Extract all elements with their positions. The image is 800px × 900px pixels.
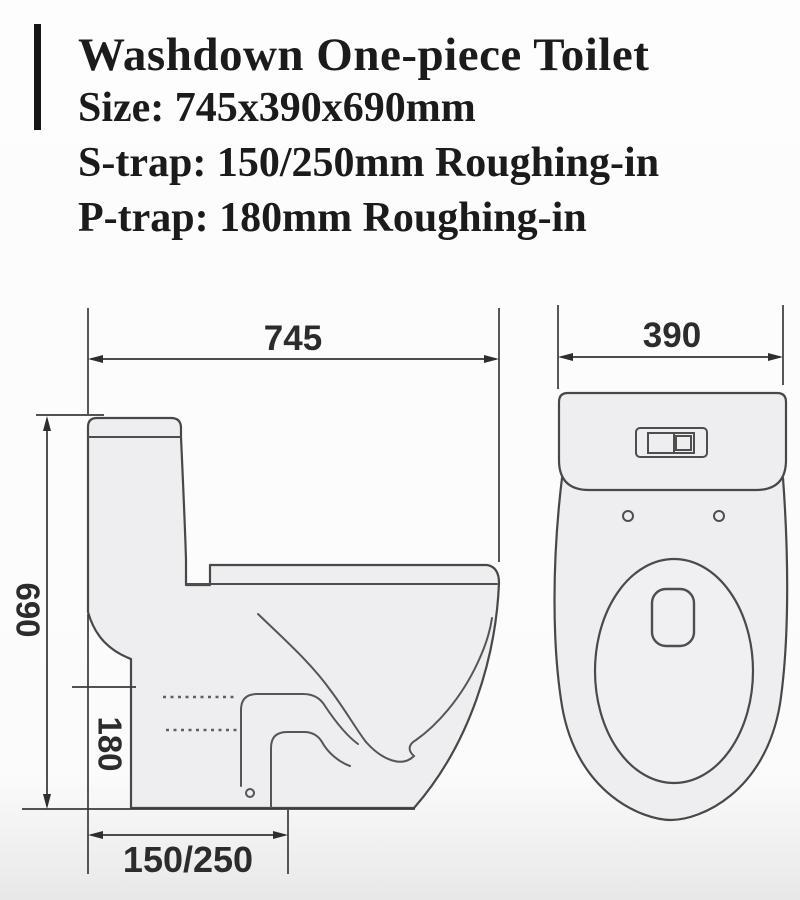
- trap-height-dim-label: 180: [92, 716, 129, 771]
- side-view-drawing: 745 690 180 150/250: [10, 308, 500, 880]
- spec-sheet: Washdown One-piece Toilet Size: 745x390x…: [0, 0, 800, 900]
- top-view-drawing: 390: [555, 305, 788, 820]
- tank-top-outline: [559, 393, 786, 490]
- toilet-side-silhouette: [88, 418, 499, 808]
- side-width-dim-label: 745: [264, 319, 322, 358]
- top-width-dim-label: 390: [643, 316, 701, 355]
- top-width-dimension: 390: [558, 305, 783, 389]
- technical-drawing: 745 690 180 150/250: [0, 0, 800, 900]
- roughing-in-dim-label: 150/250: [123, 839, 253, 880]
- flush-inlet-detail: [652, 589, 694, 646]
- roughing-in-dimension: 150/250: [88, 810, 288, 880]
- side-height-dim-label: 690: [10, 582, 47, 637]
